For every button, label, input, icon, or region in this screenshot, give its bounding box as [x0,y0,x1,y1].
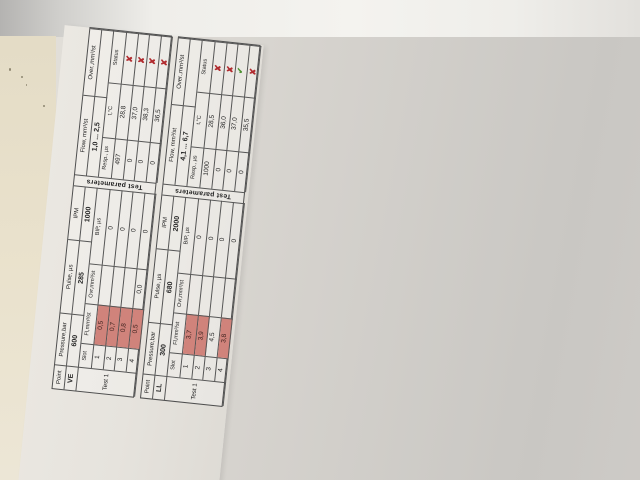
slot-number: 4 [129,359,136,363]
photo-scene: Point Pressure,bar Pulse, µs IPM VE 600 … [0,0,640,480]
desk-speck [9,68,11,71]
slot-number: 3 [206,367,213,371]
slot-number: 2 [106,356,113,360]
desk-speck [21,76,23,78]
desk-speck [26,84,27,86]
slot-number: 1 [95,355,102,359]
slot-number: 2 [195,366,202,370]
printed-tables: Point Pressure,bar Pulse, µs IPM VE 600 … [51,27,260,407]
desk-speck [43,105,45,107]
table-ll-right-section: Flow, mm³/st Over.,mm³/st 4,1 ... 6,7 Re… [164,37,260,192]
slot-number: 4 [218,368,225,372]
slot-number: 3 [118,357,125,361]
slot-number: 1 [183,364,190,368]
cell-slot: 4 [126,348,140,373]
table-ve-right-section: Flow, mm³/st Over.,mm³/st 1,0 ... 2,5 Re… [75,28,171,183]
